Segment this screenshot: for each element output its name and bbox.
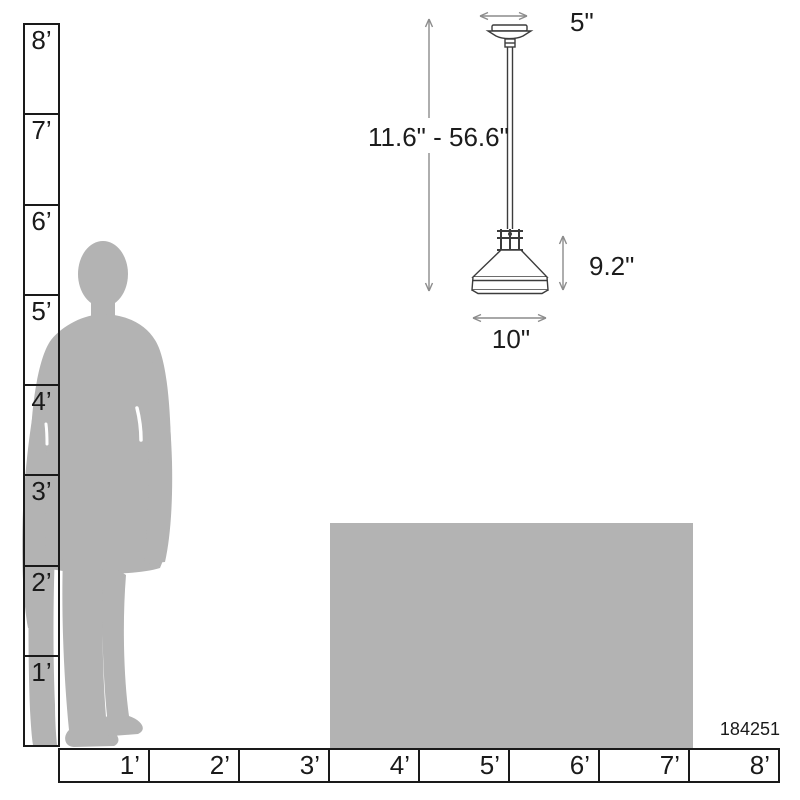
horizontal-ruler-label: 1’	[120, 751, 140, 780]
vertical-ruler-label: 4’	[31, 386, 51, 416]
vertical-ruler-label: 5’	[31, 296, 51, 326]
vertical-ruler-label: 6’	[31, 206, 51, 236]
pendant-shade	[472, 250, 548, 294]
horizontal-ruler-cell: 2’	[150, 750, 240, 781]
vertical-ruler-label: 8’	[31, 25, 51, 55]
horizontal-ruler-cell: 3’	[240, 750, 330, 781]
canopy-width-arrow	[480, 13, 527, 20]
horizontal-ruler-cell: 5’	[420, 750, 510, 781]
horizontal-ruler-cell: 8’	[690, 750, 778, 781]
hanging-height-arrow	[426, 19, 433, 291]
vertical-ruler: 8’ 7’ 6’ 5’ 4’ 3’ 2’ 1’	[23, 23, 60, 747]
hanging-height-label: 11.6" - 56.6"	[368, 122, 492, 153]
model-number: 184251	[720, 719, 780, 740]
vertical-ruler-label: 2’	[31, 567, 51, 597]
horizontal-ruler-label: 8’	[750, 751, 770, 780]
vertical-ruler-cell: 1’	[25, 657, 58, 745]
horizontal-ruler-label: 3’	[300, 751, 320, 780]
horizontal-ruler-cell: 6’	[510, 750, 600, 781]
horizontal-ruler-label: 4’	[390, 751, 410, 780]
vertical-ruler-label: 7’	[31, 115, 51, 145]
pendant-canopy	[488, 25, 531, 47]
vertical-ruler-cell: 7’	[25, 115, 58, 205]
horizontal-ruler-cell: 7’	[600, 750, 690, 781]
shade-width-label: 10"	[471, 324, 551, 355]
vertical-ruler-label: 3’	[31, 476, 51, 506]
horizontal-ruler-cell: 4’	[330, 750, 420, 781]
vertical-ruler-cell: 6’	[25, 206, 58, 296]
vertical-ruler-cell: 2’	[25, 567, 58, 657]
canopy-width-label: 5"	[570, 7, 594, 38]
shade-width-arrow	[473, 315, 546, 322]
horizontal-ruler-label: 6’	[570, 751, 590, 780]
horizontal-ruler: 1’ 2’ 3’ 4’ 5’ 6’ 7’ 8’	[58, 748, 780, 783]
scale-reference-box	[330, 523, 693, 748]
vertical-ruler-cell: 4’	[25, 386, 58, 476]
vertical-ruler-cell: 8’	[25, 25, 58, 115]
horizontal-ruler-label: 2’	[210, 751, 230, 780]
vertical-ruler-label: 1’	[31, 657, 51, 687]
dimension-diagram: 8’ 7’ 6’ 5’ 4’ 3’ 2’ 1’ 1’ 2’ 3’ 4’ 5’ 6…	[0, 0, 800, 800]
shade-height-label: 9.2"	[589, 251, 634, 282]
horizontal-ruler-cell: 1’	[60, 750, 150, 781]
horizontal-ruler-label: 5’	[480, 751, 500, 780]
vertical-ruler-cell: 3’	[25, 476, 58, 566]
pendant-fixture-drawing	[472, 25, 548, 294]
shade-height-arrow	[560, 236, 567, 290]
vertical-ruler-cell: 5’	[25, 296, 58, 386]
horizontal-ruler-label: 7’	[660, 751, 680, 780]
